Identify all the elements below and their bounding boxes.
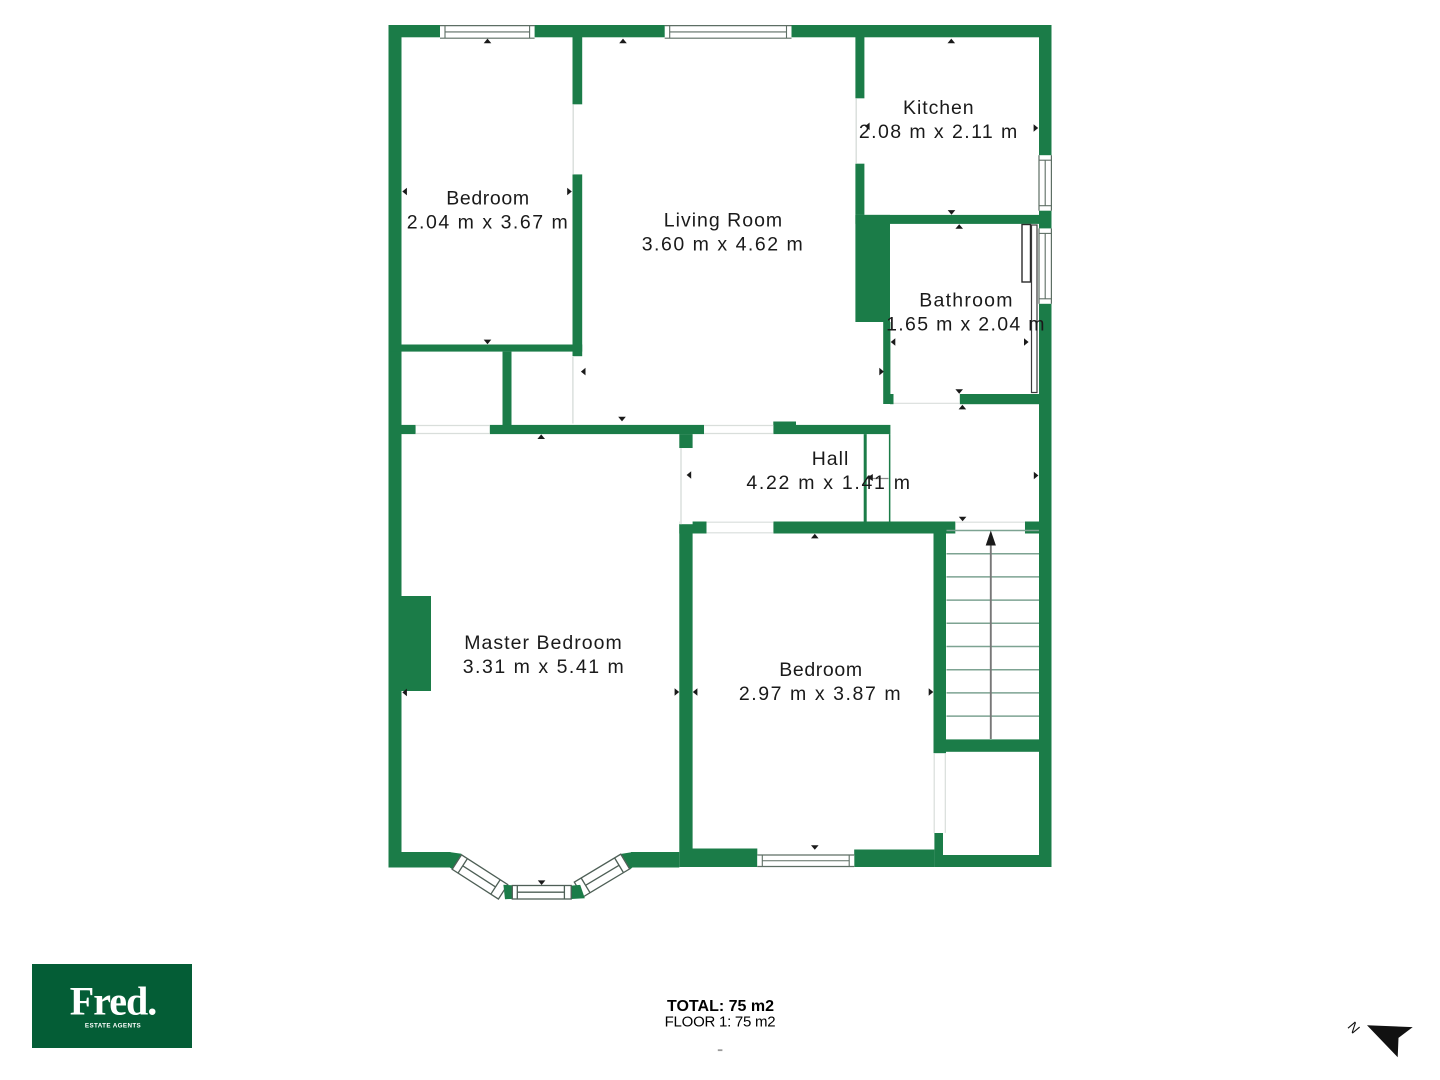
svg-text:Hall: Hall [812,448,850,470]
svg-text:Bedroom: Bedroom [446,187,530,209]
svg-text:TOTAL: 75 m2: TOTAL: 75 m2 [667,998,774,1015]
svg-text:Living Room: Living Room [664,209,783,231]
svg-text:Fred.: Fred. [70,979,156,1024]
svg-text:ESTATE AGENTS: ESTATE AGENTS [85,1023,141,1030]
svg-text:FLOOR 1: 75 m2: FLOOR 1: 75 m2 [665,1014,776,1031]
svg-text:4.22 m x 1.41 m: 4.22 m x 1.41 m [746,472,911,494]
svg-text:Kitchen: Kitchen [903,97,974,119]
svg-text:Bedroom: Bedroom [779,659,863,681]
svg-text:2.08 m x 2.11 m: 2.08 m x 2.11 m [859,121,1019,143]
svg-text:2.04 m x 3.67 m: 2.04 m x 3.67 m [407,211,570,233]
svg-text:Master Bedroom: Master Bedroom [464,632,623,654]
svg-text:3.31 m x 5.41 m: 3.31 m x 5.41 m [463,656,626,678]
svg-text:3.60 m x 4.62 m: 3.60 m x 4.62 m [642,233,805,255]
svg-text:1.65 m x 2.04 m: 1.65 m x 2.04 m [886,313,1046,335]
svg-text:Bathroom: Bathroom [919,289,1013,311]
svg-text:2.97 m x 3.87 m: 2.97 m x 3.87 m [739,683,902,705]
